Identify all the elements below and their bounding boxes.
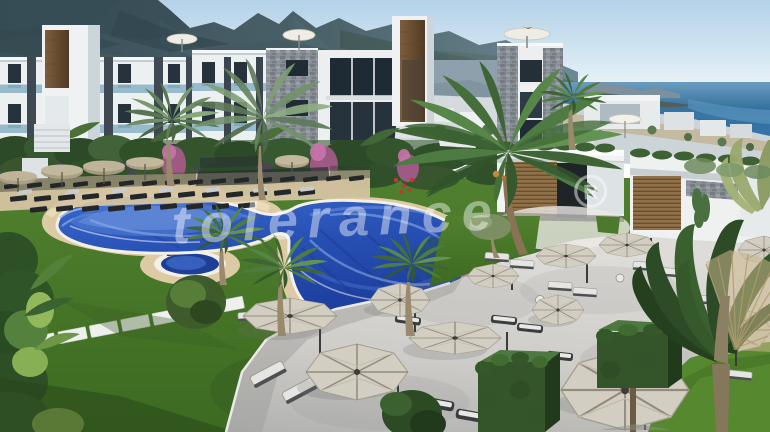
svg-text:R: R: [583, 181, 599, 205]
